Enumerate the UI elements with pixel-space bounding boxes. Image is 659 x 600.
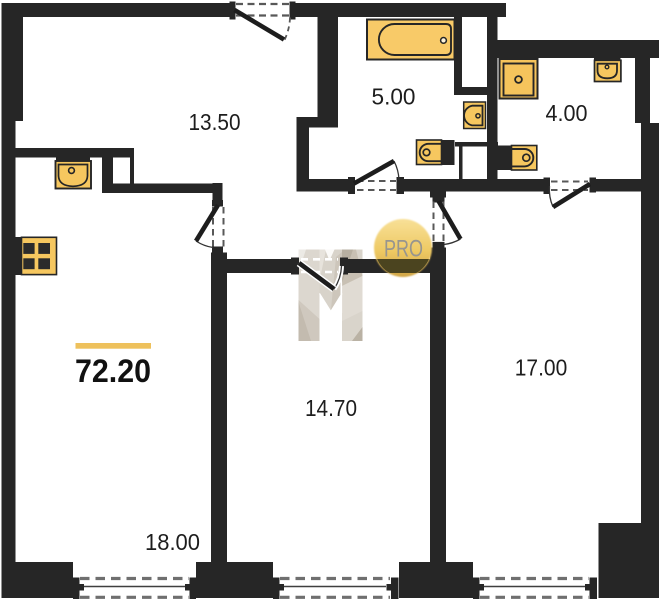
svg-text:17.00: 17.00 — [515, 355, 568, 381]
svg-text:13.50: 13.50 — [189, 109, 241, 135]
svg-text:4.00: 4.00 — [546, 100, 588, 126]
svg-text:18.00: 18.00 — [145, 529, 200, 555]
svg-text:5.00: 5.00 — [372, 84, 416, 110]
svg-text:PRO: PRO — [384, 236, 423, 263]
svg-text:14.70: 14.70 — [305, 395, 357, 421]
svg-text:72.20: 72.20 — [75, 353, 151, 389]
